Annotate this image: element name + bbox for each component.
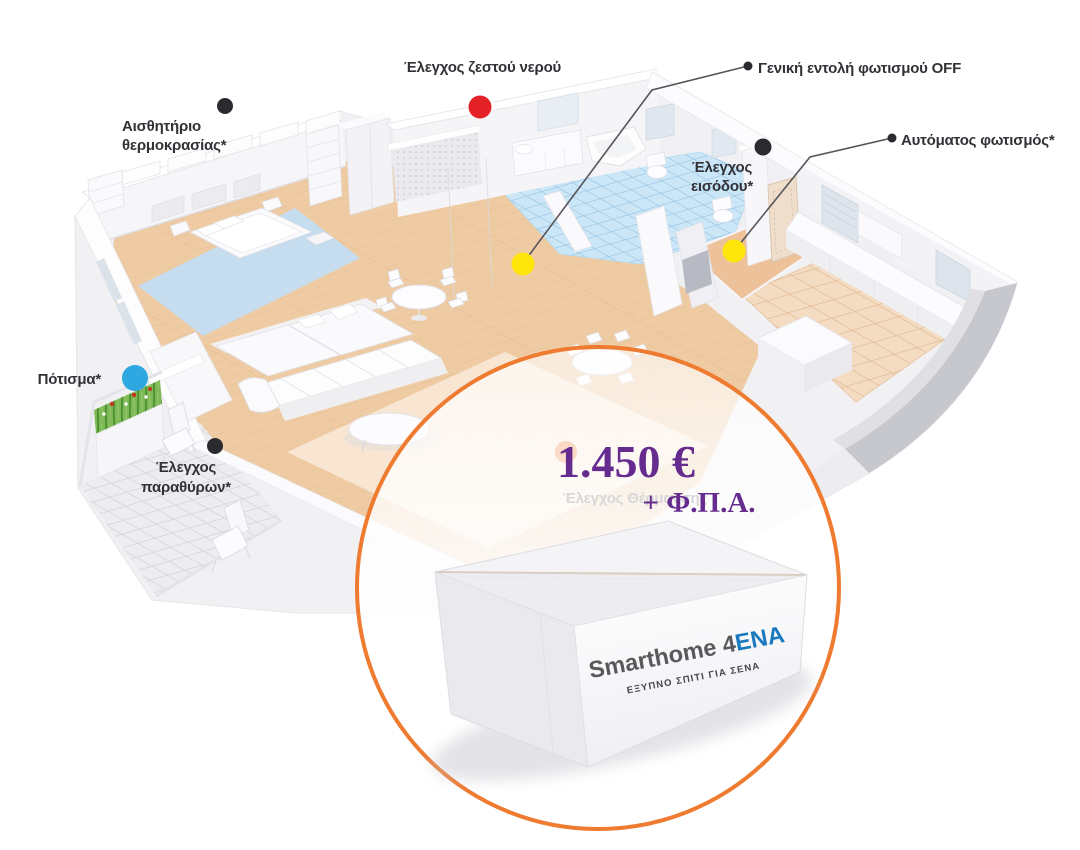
auto-lighting-bullet <box>888 134 897 143</box>
irrigation-dot <box>122 365 148 391</box>
irrigation-label: Πότισμα* <box>38 371 102 388</box>
entrance-control-dot <box>755 139 772 156</box>
smarthome-floorplan-infographic: Έλεγχος Θέρμανσης Αισθητήριο θερμοκρασία… <box>0 0 1080 850</box>
temperature-sensor-label-line1: Αισθητήριο <box>122 118 201 135</box>
window-control-dot <box>207 438 223 454</box>
auto-lighting-label: Αυτόματος φωτισμός* <box>901 132 1055 149</box>
lights-off-bullet <box>744 62 753 71</box>
window-control-label-line1: Έλεγχος <box>156 459 217 476</box>
window-control-label-line2: παραθύρων* <box>141 479 231 496</box>
temperature-sensor-dot <box>217 98 233 114</box>
entrance-control-label-line1: Έλεγχος <box>692 159 753 176</box>
temperature-sensor-label-line2: θερμοκρασίας* <box>122 137 227 154</box>
lights-off-dot <box>512 253 535 276</box>
lights-off-label: Γενική εντολή φωτισμού OFF <box>758 60 961 77</box>
hot-water-dot <box>469 96 492 119</box>
entrance-control-label-line2: εισόδου* <box>691 178 753 195</box>
price-amount: 1.450 € <box>557 436 695 487</box>
price-vat-note: + Φ.Π.Α. <box>642 487 755 519</box>
hot-water-label: Έλεγχος ζεστού νερού <box>404 59 562 76</box>
auto-lighting-dot <box>723 240 746 263</box>
